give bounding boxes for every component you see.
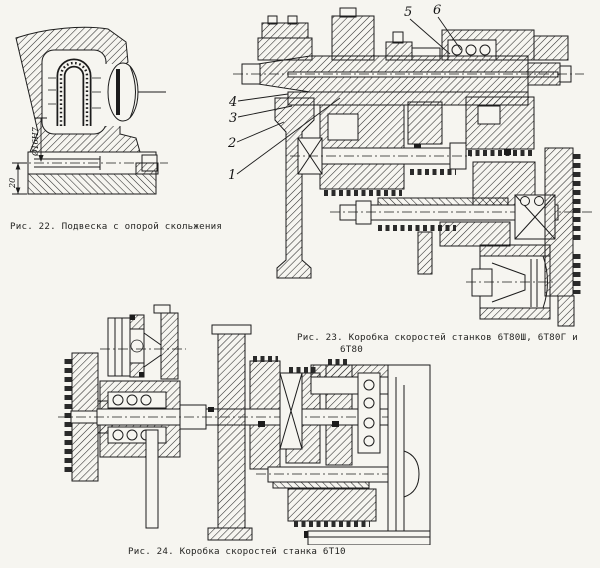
fig22-dim-diameter: Ø16Н7 [31,126,40,157]
fig23-label-4: 4 [228,95,237,110]
fig22-shaft [16,152,168,194]
figure-22: Ø16Н7 20 [8,12,173,217]
fig24-drawing [58,303,433,545]
fig22-dim-offset: 20 [8,178,17,189]
fig22-drawing: Ø16Н7 20 [8,12,173,217]
fig23-label-3: 3 [229,111,237,126]
fig23-bell-housing [418,232,554,319]
fig23-label-6: 6 [433,3,441,18]
fig23-label-2: 2 [228,136,236,151]
fig23-label-1: 1 [228,168,236,183]
fig22-ball-support [108,63,166,121]
fig23-drawing: 5 6 4 3 2 1 [228,2,598,330]
fig23-left-flange [275,98,314,278]
fig22-caption: Рис. 22. Подвеска с опорой скольжения [10,221,222,233]
fig23-top-housing [258,8,568,60]
fig23-label-5: 5 [404,5,412,20]
figure-24 [58,303,433,545]
document-page: Ø16Н7 20 Рис. 22. Подвеска с опорой скол… [0,0,600,568]
fig24-clutch-drum [100,305,186,379]
fig24-caption: Рис. 24. Коробка скоростей станка 6Т10 [128,546,346,558]
figure-23: 5 6 4 3 2 1 [228,2,598,330]
